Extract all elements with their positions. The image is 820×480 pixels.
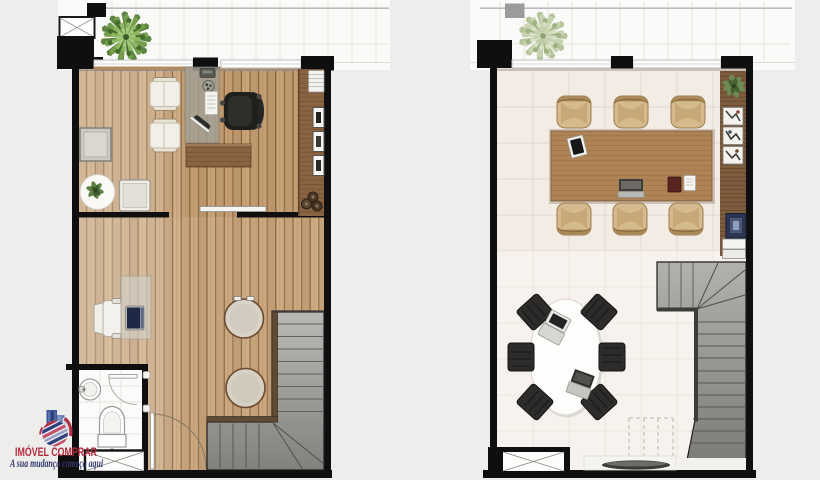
svg-text:A sua mudança começa aqui: A sua mudança começa aqui bbox=[9, 456, 103, 470]
